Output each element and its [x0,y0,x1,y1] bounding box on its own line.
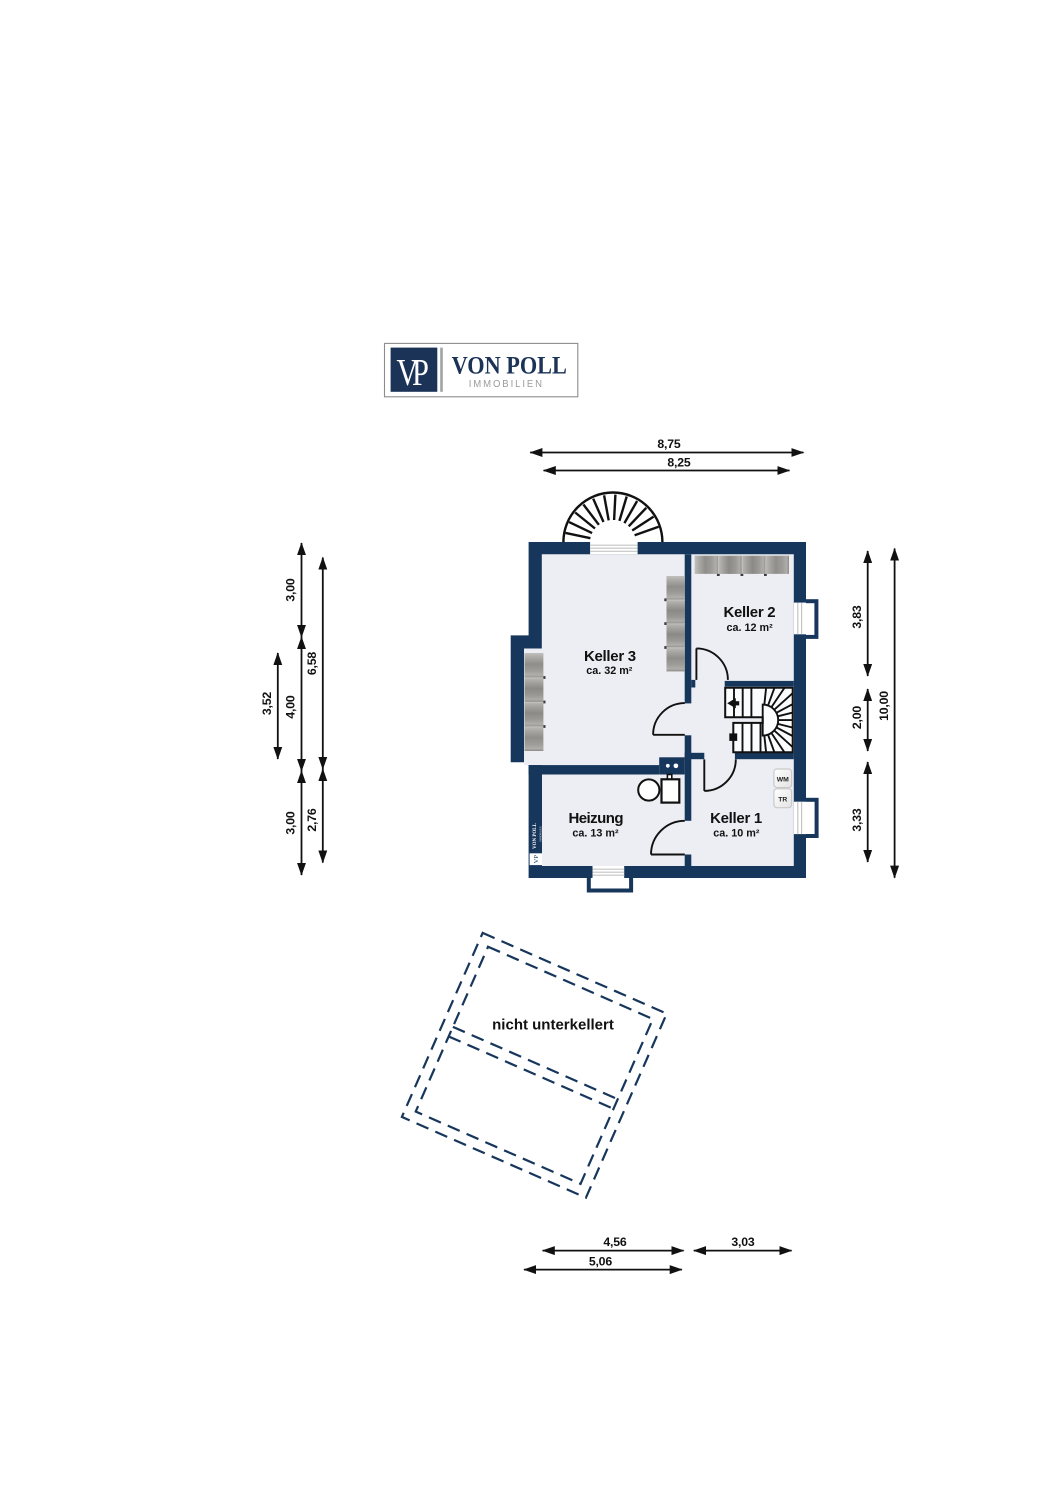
svg-text:WM: WM [777,777,789,784]
svg-text:3,33: 3,33 [850,808,864,831]
svg-text:Keller 3: Keller 3 [584,648,636,665]
svg-text:Heizung: Heizung [568,810,623,827]
svg-text:8,75: 8,75 [657,437,680,451]
svg-text:3,03: 3,03 [731,1235,754,1249]
svg-text:10,00: 10,00 [877,691,891,721]
svg-text:6,58: 6,58 [305,652,319,675]
svg-text:3,00: 3,00 [284,578,298,601]
svg-text:ca. 12 m²: ca. 12 m² [726,622,773,634]
svg-text:2,00: 2,00 [850,706,864,729]
svg-text:Keller 2: Keller 2 [723,604,775,621]
svg-text:3,83: 3,83 [850,605,864,628]
svg-text:5,06: 5,06 [589,1255,612,1269]
svg-text:8,25: 8,25 [667,456,690,470]
svg-text:IMMOBILIEN: IMMOBILIEN [539,826,543,841]
svg-text:4,56: 4,56 [603,1235,626,1249]
svg-text:3,52: 3,52 [260,692,274,715]
svg-text:4,00: 4,00 [284,695,298,718]
svg-text:IMMOBILIEN: IMMOBILIEN [469,379,544,390]
svg-text:TR: TR [778,797,787,804]
svg-text:VON POLL: VON POLL [533,822,538,849]
svg-text:ca. 13 m²: ca. 13 m² [572,828,619,840]
svg-text:3,00: 3,00 [284,811,298,834]
svg-text:VP: VP [533,855,540,864]
svg-text:nicht unterkellert: nicht unterkellert [492,1017,614,1034]
svg-text:ca. 32 m²: ca. 32 m² [586,665,633,677]
svg-text:VON POLL: VON POLL [452,352,567,379]
svg-text:ca. 10 m²: ca. 10 m² [713,828,760,840]
svg-text:Keller 1: Keller 1 [710,810,762,827]
svg-text:2,76: 2,76 [305,808,319,831]
